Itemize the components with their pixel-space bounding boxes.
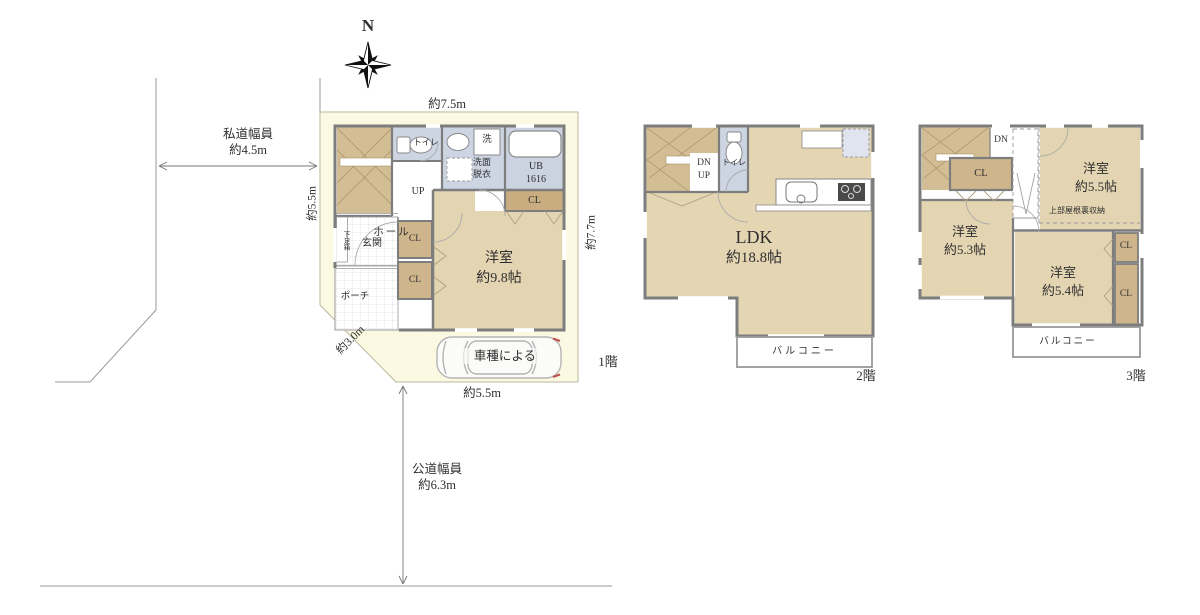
f1-washroom-line1: 洗面 [462,157,502,169]
f1-label-entrance: 玄関 [352,237,392,250]
public-road-line1: 公道幅員 [382,461,492,477]
f3-bedroom3-size: 約5.4帖 [1021,282,1105,300]
f3-label-bedroom1: 洋室 約5.5帖 [1054,160,1138,195]
private-road-line2: 約4.5m [193,142,303,158]
dim-top: 約7.5m [407,96,487,112]
f1-bath-line1: UB [512,160,560,173]
f3-label-cl1: CL [1112,240,1140,252]
private-road-label: 私道幅員 約4.5m [193,126,303,159]
f1-label-toilet: トイレ [406,137,446,148]
f1-label-up: UP [400,185,436,198]
f3-label-bedroom2: 洋室 約5.3帖 [923,223,1007,258]
f3-label-dn: DN [986,134,1016,146]
f1-bedroom-size: 約9.8帖 [441,269,557,289]
f3-bedroom2-name: 洋室 [923,223,1007,241]
f2-floor-label: 2階 [846,368,886,385]
dim-bottom: 約5.5m [442,385,522,401]
f1-washroom-line2: 脱衣 [462,169,502,181]
f2-ldk-name: LDK [684,226,824,249]
f1-label-washroom: 洗面 脱衣 [462,157,502,180]
f3-label-balcony: バルコニー [1008,336,1128,348]
f1-label-porch: ポーチ [330,291,380,303]
f1-label-shoebox: 下足箱 [337,219,348,263]
public-road-label: 公道幅員 約6.3m [382,461,492,494]
private-road-line1: 私道幅員 [193,126,303,142]
f2-label-stairs: DN UP [690,157,718,183]
f1-label-cl-a: CL [398,233,432,245]
f3-label-cl-hall: CL [950,167,1012,181]
public-road-line2: 約6.3m [382,477,492,493]
f1-label-car-note: 車種による [450,348,560,364]
dim-left: 約5.5m [306,173,321,233]
f3-bedroom1-size: 約5.5帖 [1054,178,1138,196]
f1-label-bath: UB 1616 [512,160,560,186]
f1-floor-label: 1階 [588,354,628,371]
f2-label-balcony: バルコニー [742,345,867,358]
f3-label-bedroom3: 洋室 約5.4帖 [1021,264,1105,299]
f1-label-laundry: 洗 [476,134,498,146]
compass-north-label: N [348,15,388,37]
f2-label-up: UP [690,170,718,183]
f3-label-attic: 上部屋根裏収納 [1038,206,1116,216]
f3-bedroom1-name: 洋室 [1054,160,1138,178]
compass-rose [345,42,391,88]
f3-bedroom3-name: 洋室 [1021,264,1105,282]
f3-label-cl2: CL [1112,288,1140,300]
f1-bath-line2: 1616 [512,173,560,186]
f2-label-dn: DN [690,157,718,170]
f1-label-bedroom: 洋室 約9.8帖 [441,249,557,290]
f2-label-ldk: LDK 約18.8帖 [684,226,824,269]
f2-label-toilet: トイレ [719,158,749,168]
floorplan-canvas: N 私道幅員 約4.5m 公道幅員 約6.3m 約7.5m 約5.5m 約7.7… [0,0,1200,615]
floorplan-drawing [0,0,1200,615]
f2-ldk-size: 約18.8帖 [684,249,824,269]
f3-bedroom2-size: 約5.3帖 [923,241,1007,259]
f1-label-cl-b: CL [398,274,432,286]
f3-floor-label: 3階 [1116,368,1156,385]
dim-right: 約7.7m [585,202,600,262]
f1-label-cl-bath: CL [505,194,564,207]
f1-bedroom-name: 洋室 [441,249,557,269]
